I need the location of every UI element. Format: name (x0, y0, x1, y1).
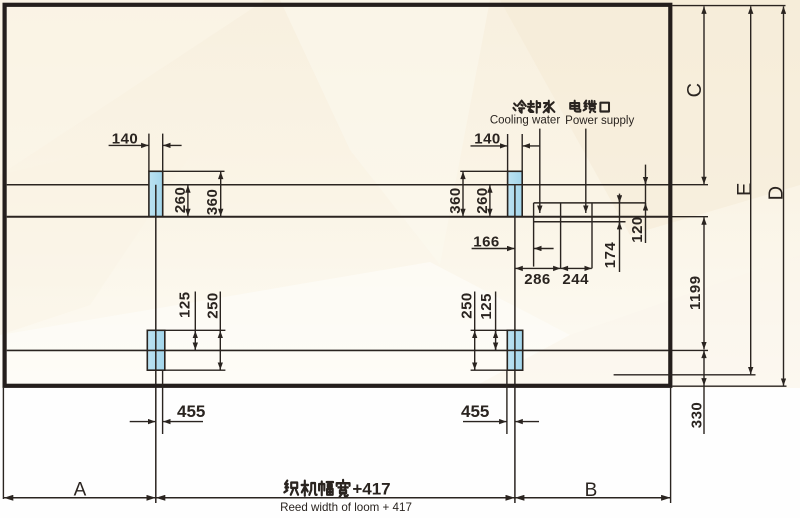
svg-text:260: 260 (172, 187, 189, 214)
svg-text:455: 455 (461, 402, 489, 421)
svg-text:260: 260 (474, 187, 491, 214)
svg-text:E: E (734, 183, 756, 196)
svg-text:125: 125 (176, 291, 193, 318)
svg-text:360: 360 (447, 187, 464, 214)
svg-text:455: 455 (177, 402, 205, 421)
svg-text:A: A (74, 480, 87, 501)
svg-text:B: B (585, 480, 598, 501)
svg-text:250: 250 (205, 292, 222, 319)
svg-text:Cooling water: Cooling water (490, 115, 560, 127)
svg-text:140: 140 (112, 130, 139, 147)
svg-text:174: 174 (602, 242, 619, 269)
svg-text:140: 140 (474, 130, 501, 147)
svg-text:244: 244 (562, 271, 589, 288)
svg-text:125: 125 (478, 293, 495, 320)
svg-text:Reed width of loom + 417: Reed width of loom + 417 (280, 501, 412, 514)
svg-text:360: 360 (204, 189, 221, 216)
svg-text:Power supply: Power supply (565, 115, 634, 127)
svg-text:250: 250 (458, 292, 475, 319)
svg-text:+417: +417 (352, 479, 390, 498)
svg-text:166: 166 (473, 233, 500, 250)
svg-text:1199: 1199 (687, 275, 704, 310)
svg-text:330: 330 (688, 402, 705, 429)
svg-text:D: D (766, 186, 788, 200)
svg-text:120: 120 (629, 216, 646, 243)
svg-text:C: C (684, 83, 706, 97)
svg-text:286: 286 (524, 271, 551, 288)
